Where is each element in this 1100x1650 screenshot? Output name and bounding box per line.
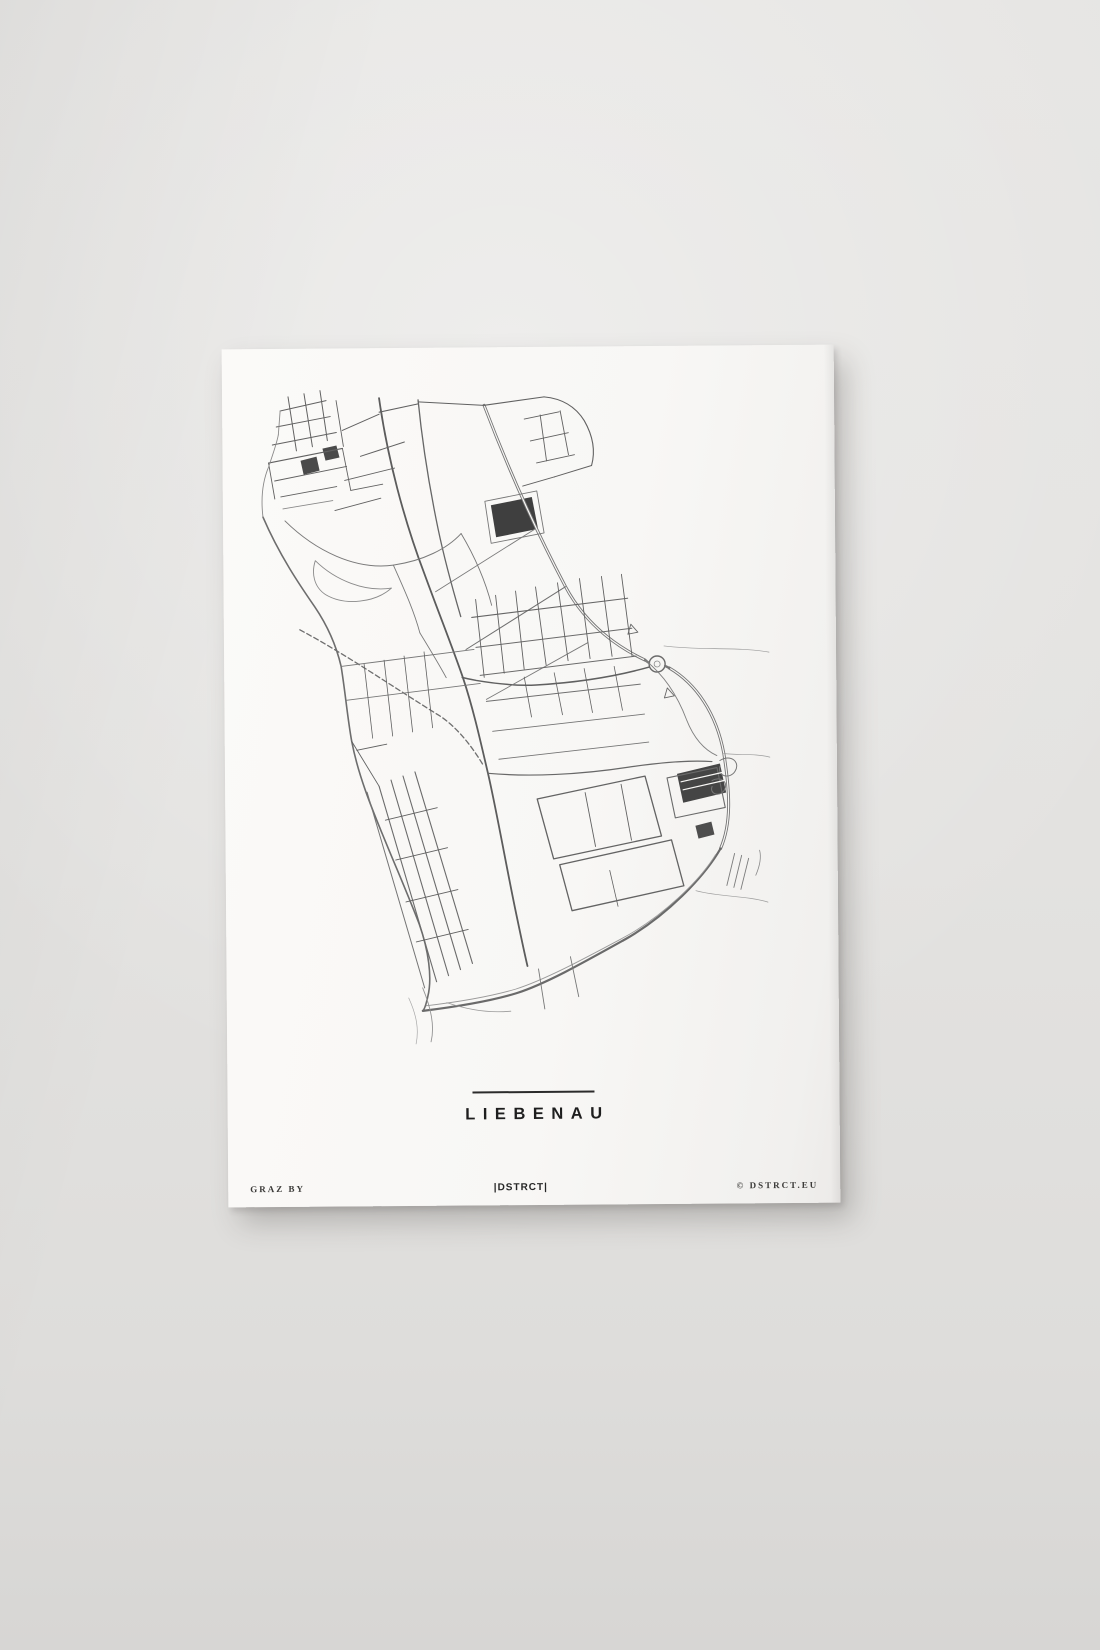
title-rule (472, 1091, 594, 1094)
wall-background: LIEBENAU GRAZ BY |DSTRCT| © DSTRCT.EU (0, 0, 1100, 1650)
footer-brand-logo: |DSTRCT| (494, 1182, 548, 1193)
footer-copyright: © DSTRCT.EU (737, 1180, 819, 1191)
poster-title: LIEBENAU (458, 1104, 610, 1124)
footer-city-label: GRAZ BY (250, 1184, 305, 1194)
street-network-layer (261, 387, 772, 1045)
title-block: LIEBENAU (227, 1089, 839, 1127)
map-poster: LIEBENAU GRAZ BY |DSTRCT| © DSTRCT.EU (222, 345, 841, 1208)
liebenau-street-map (222, 345, 841, 1208)
